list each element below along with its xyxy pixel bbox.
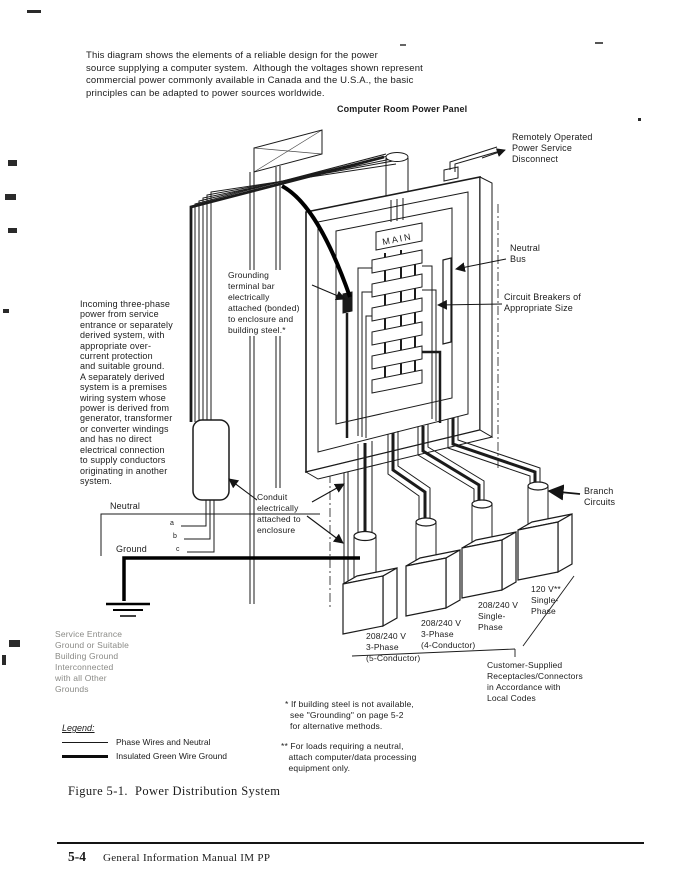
diagram-title: Computer Room Power Panel — [337, 104, 467, 115]
remote-disconnect-wire — [444, 147, 505, 181]
outlet-2-label: 208/240 V 3-Phase (4-Conductor) — [421, 618, 475, 651]
legend: Legend: Phase Wires and Neutral Insulate… — [62, 723, 227, 761]
scan-artifact — [9, 640, 20, 647]
footer-rule — [57, 842, 644, 844]
service-entrance-ground-label: Service Entrance Ground or Suitable Buil… — [55, 629, 129, 695]
scan-artifact — [400, 44, 406, 46]
outlet-1-label: 208/240 V 3-Phase (5-Conductor) — [366, 631, 420, 664]
neutral-bus-bar — [443, 258, 451, 344]
figure-caption: Figure 5-1. Power Distribution System — [68, 784, 280, 799]
legend-ground-row: Insulated Green Wire Ground — [62, 751, 227, 761]
outlet-4-label: 120 V** Single- Phase — [531, 584, 561, 617]
legend-phase-row: Phase Wires and Neutral — [62, 737, 227, 747]
ground-wire-sample — [62, 755, 108, 758]
legend-phase-label: Phase Wires and Neutral — [116, 737, 211, 747]
page-number: 5-4 — [68, 849, 86, 865]
phase-b-label: b — [173, 533, 177, 540]
ground-symbol — [106, 604, 150, 616]
service-pull-box — [193, 420, 229, 500]
scanned-manual-page: MAIN — [0, 0, 700, 880]
scan-artifact — [8, 160, 17, 166]
scan-artifact — [2, 655, 6, 665]
neutral-wire-label: Neutral — [110, 501, 140, 512]
neutral-bus-label: Neutral Bus — [510, 243, 540, 265]
legend-title: Legend: — [62, 723, 227, 733]
scan-artifact — [5, 194, 16, 200]
phase-a-label: a — [170, 520, 174, 527]
phase-c-label: c — [176, 546, 180, 553]
customer-receptacles-label: Customer-Supplied Receptacles/Connectors… — [487, 660, 583, 704]
scan-artifact — [638, 118, 641, 121]
remote-disconnect-label: Remotely Operated Power Service Disconne… — [512, 132, 593, 165]
phase-wire-sample — [62, 742, 108, 743]
footnote-neutral-loads: ** For loads requiring a neutral, attach… — [281, 741, 417, 774]
circuit-breakers-label: Circuit Breakers of Appropriate Size — [504, 292, 581, 314]
legend-ground-label: Insulated Green Wire Ground — [116, 751, 227, 761]
scan-artifact — [8, 228, 17, 233]
scan-artifact — [3, 309, 9, 313]
scan-artifact — [595, 42, 603, 44]
branch-circuits-label: Branch Circuits — [584, 486, 615, 508]
footnote-building-steel: * If building steel is not available, se… — [285, 699, 414, 732]
ground-wire-label: Ground — [116, 544, 147, 555]
manual-title: General Information Manual IM PP — [103, 852, 270, 864]
scan-artifact — [27, 10, 41, 13]
intro-paragraph: This diagram shows the elements of a rel… — [86, 50, 423, 100]
grounding-terminal-bar-label: Grounding terminal bar electrically atta… — [228, 270, 300, 336]
conduit-label: Conduit electrically attached to enclosu… — [257, 492, 301, 536]
incoming-power-label: Incoming three-phase power from service … — [80, 299, 173, 486]
outlet-3-label: 208/240 V Single- Phase — [478, 600, 518, 633]
